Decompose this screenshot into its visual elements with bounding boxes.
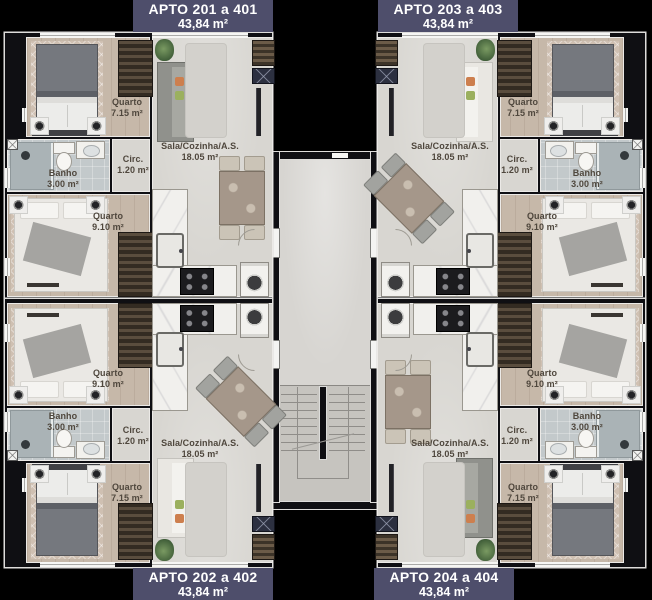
sofa-pillow [175, 91, 184, 100]
sofa-pillow [466, 500, 475, 509]
tv-panel [389, 464, 394, 512]
window [402, 33, 498, 38]
room-label-circ: Circ.1.20 m² [475, 154, 559, 175]
nightstand [545, 118, 562, 134]
chair [219, 225, 240, 240]
chair [244, 156, 265, 171]
nightstand [87, 387, 104, 403]
nightstand [623, 197, 640, 213]
apartment-area: 43,84 m² [378, 17, 518, 31]
room-label-quarto-large: Quarto9.10 m² [66, 368, 150, 389]
room-label-circ: Circ.1.20 m² [475, 425, 559, 446]
apartment-geometry: Quarto7.15 m² Sala/Cozinha/A.S.18.05 m² … [5, 33, 272, 301]
corridor-window [332, 153, 348, 158]
entry-cabinet [253, 517, 274, 531]
vent-duct-icon [633, 451, 642, 460]
nightstand [545, 466, 562, 482]
living-rug [424, 44, 464, 137]
apartment-entry-door [272, 341, 279, 368]
dining-set [210, 156, 272, 238]
living-rug [186, 463, 226, 556]
wardrobe [119, 41, 152, 96]
entry-cabinet [253, 69, 274, 83]
window [402, 562, 498, 567]
wardrobe [119, 504, 152, 559]
corridor-wall [371, 368, 378, 502]
title-block-apt-203: APTO 203 a 403 43,84 m² [378, 0, 518, 32]
apartment-201: Quarto7.15 m² Sala/Cozinha/A.S.18.05 m² … [5, 33, 272, 301]
room-label-quarto-large: Quarto9.10 m² [500, 211, 584, 232]
wardrobe [498, 504, 531, 559]
sofa-pillow [175, 77, 184, 86]
entry-cabinet [376, 69, 397, 83]
dining-table [385, 375, 431, 429]
washing-machine [382, 304, 409, 337]
tv-panel [389, 88, 394, 136]
nightstand [546, 387, 563, 403]
room-label-circ: Circ.1.20 m² [91, 154, 175, 175]
stove-cooktop [181, 306, 213, 331]
window [152, 33, 248, 38]
apartment-202: Quarto7.15 m² Sala/Cozinha/A.S.18.05 m² … [5, 299, 272, 567]
stair-divider-wall [319, 386, 327, 460]
corridor-wall [272, 368, 279, 502]
apartment-entry-door [371, 341, 378, 368]
stove-cooktop [181, 269, 213, 294]
sofa-pillow [466, 91, 475, 100]
apartment-area: 43,84 m² [133, 585, 273, 599]
chair [385, 429, 406, 444]
wardrobe [119, 304, 152, 367]
stove-cooktop [437, 306, 469, 331]
vent-duct-icon [8, 140, 17, 149]
wardrobe [498, 233, 531, 296]
toilet [575, 446, 597, 458]
window [5, 168, 10, 188]
nightstand [31, 466, 48, 482]
sofa-pillow [175, 500, 184, 509]
toilet [575, 142, 597, 154]
window [535, 33, 610, 38]
apartment-title: APTO 204 a 404 [374, 569, 514, 585]
plant-icon [476, 39, 495, 61]
apartment-204: Quarto7.15 m² Sala/Cozinha/A.S.18.05 m² … [378, 299, 645, 567]
apartment-203: Quarto7.15 m² Sala/Cozinha/A.S.18.05 m² … [378, 33, 645, 301]
entry-shelf [253, 41, 274, 65]
apartment-entry-door [371, 229, 378, 257]
room-label-quarto-large: Quarto9.10 m² [66, 211, 150, 232]
dining-table [219, 171, 265, 225]
vent-duct-icon [633, 140, 642, 149]
apartment-title: APTO 202 a 402 [133, 569, 273, 585]
kitchen-sink [466, 332, 494, 367]
kitchen-sink [156, 233, 184, 268]
dining-set [378, 362, 440, 444]
corridor-wall [272, 152, 279, 229]
chair [410, 360, 431, 375]
window [623, 108, 628, 122]
washing-machine [382, 263, 409, 296]
apartment-geometry: Quarto7.15 m² Sala/Cozinha/A.S.18.05 m² … [378, 299, 645, 567]
entry-cabinet [376, 517, 397, 531]
title-block-apt-204: APTO 204 a 404 43,84 m² [374, 568, 514, 600]
room-label-circ: Circ.1.20 m² [91, 425, 175, 446]
sofa-pillow [466, 514, 475, 523]
bed-foot-bench [591, 283, 623, 287]
window [623, 478, 628, 492]
tv-panel [256, 88, 261, 136]
room-label-quarto-large: Quarto9.10 m² [500, 368, 584, 389]
nightstand [31, 118, 48, 134]
corridor-wall [272, 502, 378, 509]
window [640, 258, 645, 276]
toilet [53, 446, 75, 458]
title-block-apt-201: APTO 201 a 401 43,84 m² [133, 0, 273, 32]
kitchen-sink [466, 233, 494, 268]
apartment-area: 43,84 m² [374, 585, 514, 599]
nightstand [10, 197, 27, 213]
plant-icon [476, 539, 495, 561]
nightstand [623, 387, 640, 403]
window [640, 412, 645, 432]
entry-shelf [376, 535, 397, 559]
kitchen-sink [156, 332, 184, 367]
window [640, 324, 645, 342]
washing-machine [241, 304, 268, 337]
apartment-title: APTO 203 a 403 [378, 1, 518, 17]
bed-foot-bench [27, 313, 59, 317]
plant-icon [155, 539, 174, 561]
corridor-floor [279, 159, 371, 385]
nightstand [88, 466, 105, 482]
window [640, 168, 645, 188]
apartment-title: APTO 201 a 401 [133, 1, 273, 17]
living-rug [424, 463, 464, 556]
window [22, 108, 27, 122]
nightstand [602, 466, 619, 482]
wardrobe [498, 304, 531, 367]
sofa-pillow [175, 514, 184, 523]
nightstand [10, 387, 27, 403]
bed-foot-bench [591, 313, 623, 317]
room-label-quarto-small: Quarto7.15 m² [481, 482, 565, 503]
title-block-apt-202: APTO 202 a 402 43,84 m² [133, 568, 273, 600]
nightstand [602, 118, 619, 134]
apartment-entry-door [272, 229, 279, 257]
window [5, 258, 10, 276]
room-label-quarto-small: Quarto7.15 m² [85, 97, 169, 118]
window [22, 478, 27, 492]
living-rug [186, 44, 226, 137]
window [40, 33, 115, 38]
apartment-geometry: Quarto7.15 m² Sala/Cozinha/A.S.18.05 m² … [378, 33, 645, 301]
nightstand [88, 118, 105, 134]
window [152, 562, 248, 567]
apartment-geometry: Quarto7.15 m² Sala/Cozinha/A.S.18.05 m² … [5, 299, 272, 567]
window [5, 324, 10, 342]
bed-foot-bench [27, 283, 59, 287]
wardrobe [498, 41, 531, 96]
apartment-area: 43,84 m² [133, 17, 273, 31]
vent-duct-icon [8, 451, 17, 460]
wardrobe [119, 233, 152, 296]
room-label-quarto-small: Quarto7.15 m² [85, 482, 169, 503]
corridor-wall [272, 152, 378, 159]
stove-cooktop [437, 269, 469, 294]
corridor-wall [272, 257, 279, 341]
toilet [53, 142, 75, 154]
corridor-wall [371, 257, 378, 341]
plant-icon [155, 39, 174, 61]
window [40, 562, 115, 567]
entry-shelf [376, 41, 397, 65]
window [5, 412, 10, 432]
window [535, 562, 610, 567]
sofa-pillow [466, 77, 475, 86]
tv-panel [256, 464, 261, 512]
entry-shelf [253, 535, 274, 559]
floor-plan-canvas: Quarto7.15 m² Sala/Cozinha/A.S.18.05 m² … [0, 0, 652, 600]
room-label-quarto-small: Quarto7.15 m² [481, 97, 565, 118]
washing-machine [241, 263, 268, 296]
